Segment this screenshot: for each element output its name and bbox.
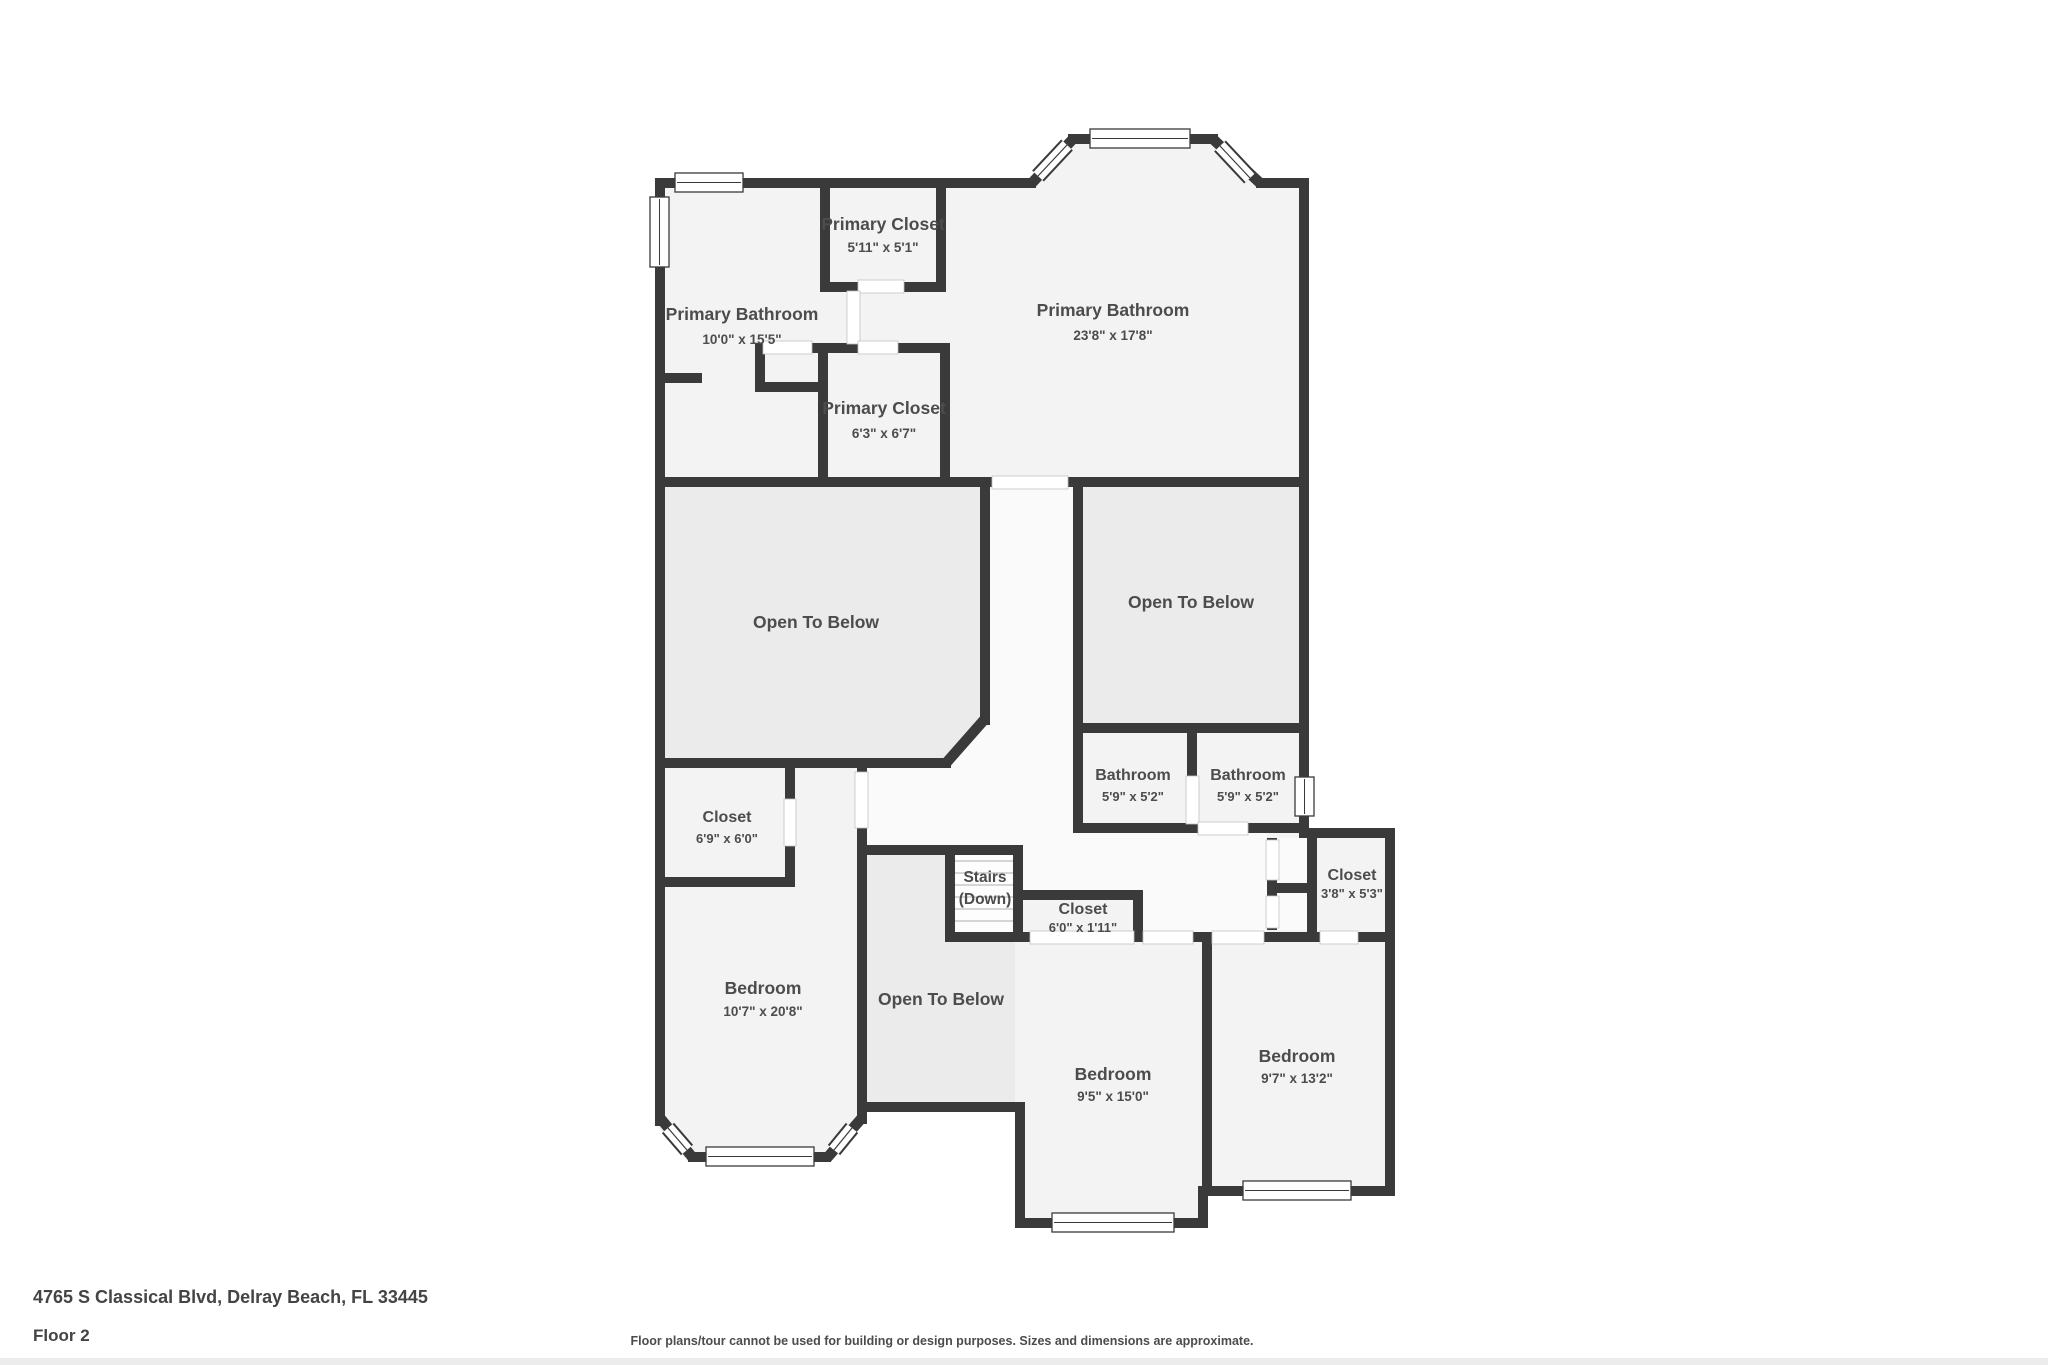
- room-label-bedroom-c: Bedroom: [1259, 1046, 1336, 1066]
- room-label-stairs: Stairs: [963, 869, 1006, 886]
- bottom-divider-bar: [0, 1358, 2048, 1365]
- room-dims-primary-bathroom-b: 23'8" x 17'8": [1073, 328, 1152, 343]
- room-dims-primary-bathroom-a: 10'0" x 15'5": [702, 332, 781, 347]
- room-label-closet-b: Closet: [1059, 901, 1109, 918]
- room-dims-bedroom-c: 9'7" x 13'2": [1261, 1071, 1333, 1086]
- room-label-open-below-left: Open To Below: [753, 612, 879, 632]
- floor-label: Floor 2: [33, 1326, 90, 1345]
- room-dims-closet-c: 3'8" x 5'3": [1321, 886, 1383, 901]
- room-label-closet-a: Closet: [703, 809, 753, 826]
- room-dims-primary-closet-b: 6'3" x 6'7": [852, 426, 916, 441]
- room-label-bathroom-a: Bathroom: [1095, 767, 1171, 784]
- address-text: 4765 S Classical Blvd, Delray Beach, FL …: [33, 1287, 428, 1307]
- room-dims-bathroom-a: 5'9" x 5'2": [1102, 789, 1164, 804]
- floor-plan-page: Primary Closet 5'11" x 5'1" Primary Bath…: [0, 0, 2048, 1365]
- room-dims-closet-a: 6'9" x 6'0": [696, 831, 758, 846]
- room-label-primary-bathroom-b: Primary Bathroom: [1037, 300, 1190, 320]
- room-label-primary-bathroom-a: Primary Bathroom: [666, 304, 819, 324]
- hallway: [990, 487, 1073, 768]
- room-dims-bedroom-a: 10'7" x 20'8": [723, 1004, 802, 1019]
- room-label-bedroom-b: Bedroom: [1075, 1064, 1152, 1084]
- room-dims-bathroom-b: 5'9" x 5'2": [1217, 789, 1279, 804]
- room-label-primary-closet-a: Primary Closet: [821, 214, 945, 234]
- room-label-bathroom-b: Bathroom: [1210, 767, 1286, 784]
- room-label-stairs-down: (Down): [959, 891, 1012, 908]
- room-dims-primary-closet-a: 5'11" x 5'1": [847, 240, 918, 255]
- room-label-bedroom-a: Bedroom: [725, 978, 802, 998]
- room-label-open-below-right: Open To Below: [1128, 592, 1254, 612]
- floor-plan-drawing: Primary Closet 5'11" x 5'1" Primary Bath…: [0, 0, 2048, 1365]
- room-dims-closet-b: 6'0" x 1'11": [1049, 920, 1117, 935]
- room-label-open-below-middle: Open To Below: [878, 989, 1004, 1009]
- room-dims-bedroom-b: 9'5" x 15'0": [1077, 1089, 1149, 1104]
- disclaimer-text: Floor plans/tour cannot be used for buil…: [630, 1334, 1253, 1348]
- room-label-closet-c: Closet: [1328, 867, 1378, 884]
- room-label-primary-closet-b: Primary Closet: [822, 398, 946, 418]
